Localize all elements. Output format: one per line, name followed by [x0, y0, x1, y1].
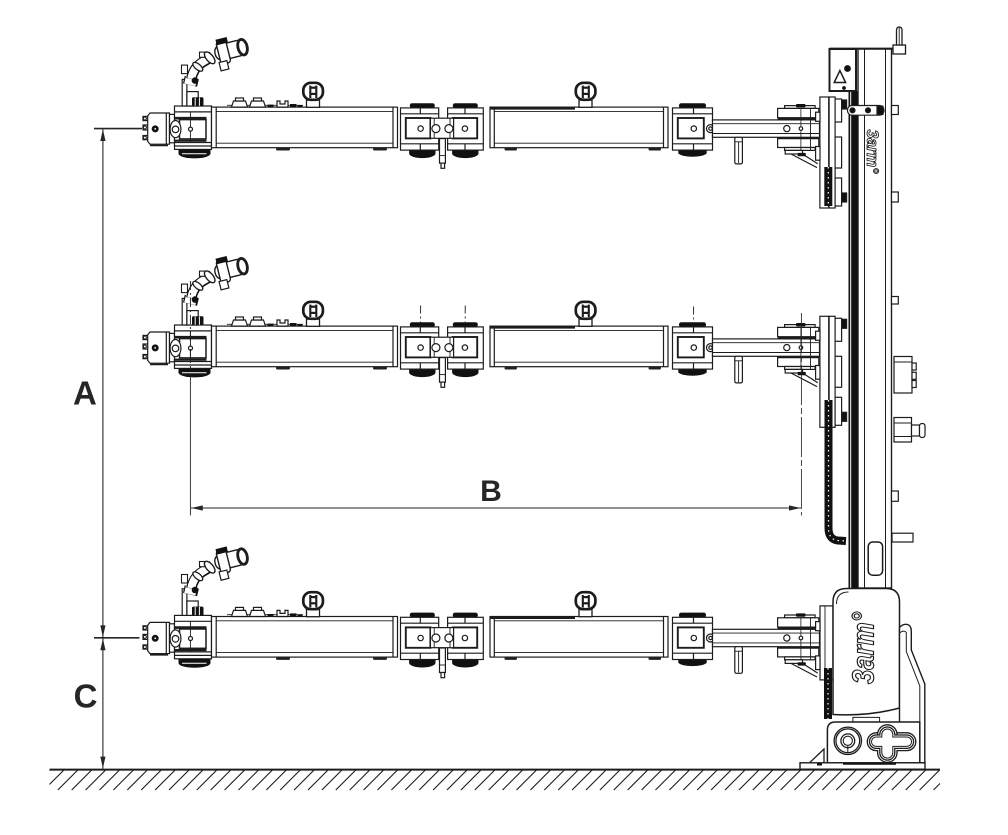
svg-text:A: A: [73, 375, 97, 412]
svg-text:B: B: [480, 475, 502, 508]
svg-text:C: C: [74, 678, 98, 715]
svg-text:3arm°: 3arm°: [863, 130, 882, 174]
svg-text:3arm°: 3arm°: [846, 612, 881, 684]
